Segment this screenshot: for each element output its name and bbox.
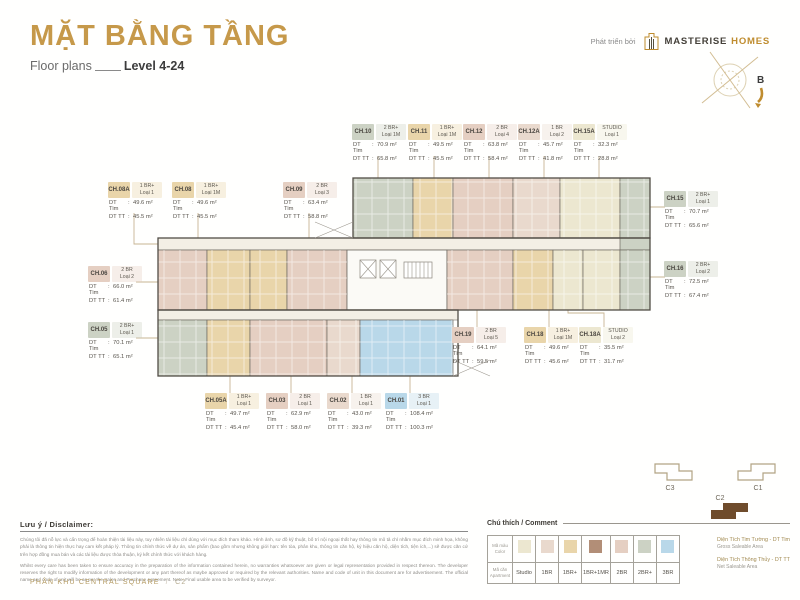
- unit-type-label: 3 BRLoại 1: [409, 393, 439, 409]
- unit-net-area: DT TT:39.3 m²: [327, 425, 381, 431]
- unit-net-area: DT TT:65.6 m²: [664, 223, 718, 229]
- unit-gross-area: DT Tim:64.1 m²: [452, 345, 506, 357]
- disclaimer-block: Lưu ý / Disclaimer: Chúng tôi đã nỗ lực …: [20, 520, 468, 584]
- unit-id-chip: CH.15A: [573, 124, 595, 140]
- unit-gross-area: DT Tim:63.4 m²: [283, 200, 337, 212]
- unit-id-chip: CH.15: [664, 191, 686, 207]
- unit-gross-area: DT Tim:45.7 m²: [518, 142, 572, 154]
- footer-zone-name: PHÂN KHU CENTRAL SQUARE: [30, 579, 160, 586]
- unit-net-area: DT TT:45.5 m²: [408, 156, 462, 162]
- unit-callout-header: CH.081 BR+Loại 1M: [172, 182, 226, 198]
- unit-type-label: 1 BR+Loại 1: [132, 182, 162, 198]
- unit-callout: CH.08A1 BR+Loại 1DT Tim:49.6 m²DT TT:45.…: [108, 182, 162, 220]
- unit-net-area: DT TT:65.1 m²: [88, 354, 142, 360]
- disclaimer-title: Lưu ý / Disclaimer:: [20, 520, 468, 532]
- unit-callout: CH.192 BRLoại 5DT Tim:64.1 m²DT TT:59.5 …: [452, 327, 506, 365]
- keyplan-label-c3: C3: [666, 485, 675, 492]
- unit-callout-header: CH.111 BR+Loại 1M: [408, 124, 462, 140]
- unit-callout-header: CH.15ASTUDIOLoại 1: [573, 124, 627, 140]
- unit-callout-header: CH.05A1 BR+Loại 1: [205, 393, 259, 409]
- unit-callout: CH.12A1 BRLoại 2DT Tim:45.7 m²DT TT:41.8…: [518, 124, 572, 162]
- footer-block-name: C2: [175, 579, 186, 586]
- unit-net-area: DT TT:45.6 m²: [524, 359, 578, 365]
- unit-gross-area: DT Tim:49.6 m²: [172, 200, 226, 212]
- unit-id-chip: CH.01: [385, 393, 407, 409]
- legend-label-1BR+: 1BR+: [559, 563, 582, 584]
- unit-callout: CH.092 BRLoại 3DT Tim:63.4 m²DT TT:58.8 …: [283, 182, 337, 220]
- floor-plan-page: MẶT BẰNG TẦNG Floor plans Level 4-24 Phá…: [0, 0, 800, 600]
- unit-id-chip: CH.19: [452, 327, 474, 343]
- unit-id-chip: CH.02: [327, 393, 349, 409]
- unit-type-label: 2 BR+Loại 2: [688, 261, 718, 277]
- legend-header: Chú thích / Comment: [487, 520, 790, 527]
- unit-callout: CH.18ASTUDIOLoại 2DT Tim:35.5 m²DT TT:31…: [579, 327, 633, 365]
- unit-callout-header: CH.192 BRLoại 5: [452, 327, 506, 343]
- unit-type-label: 1 BR+Loại 1M: [548, 327, 578, 343]
- unit-gross-area: DT Tim:63.8 m²: [463, 142, 517, 154]
- unit-callout-header: CH.013 BRLoại 1: [385, 393, 439, 409]
- unit-callout-header: CH.162 BR+Loại 2: [664, 261, 718, 277]
- unit-gross-area: DT Tim:49.7 m²: [205, 411, 259, 423]
- unit-type-label: 2 BRLoại 4: [487, 124, 517, 140]
- subtitle-level-range: Level 4-24: [124, 59, 184, 73]
- unit-callout: CH.111 BR+Loại 1MDT Tim:49.5 m²DT TT:45.…: [408, 124, 462, 162]
- unit-callout: CH.162 BR+Loại 2DT Tim:72.5 m²DT TT:67.4…: [664, 261, 718, 299]
- keyplan-building-c3: [655, 464, 692, 480]
- unit-type-label: 1 BRLoại 1: [351, 393, 381, 409]
- legend-label-1BR+1MR: 1BR+1MR: [582, 563, 611, 584]
- unit-gross-area: DT Tim:108.4 m²: [385, 411, 439, 423]
- brand-name-secondary: HOMES: [731, 36, 770, 47]
- unit-type-label: 1 BRLoại 2: [542, 124, 572, 140]
- compass-icon: B: [700, 50, 772, 114]
- unit-type-label: 2 BR+Loại 1: [112, 322, 142, 338]
- footer: PHÂN KHU CENTRAL SQUARE / C2: [30, 579, 186, 586]
- plan-core: [347, 250, 447, 310]
- unit-net-area: DT TT:59.5 m²: [452, 359, 506, 365]
- legend-swatch-Studio: [513, 536, 536, 563]
- unit-gross-area: DT Tim:32.3 m²: [573, 142, 627, 154]
- brand-name-primary: MASTERISE: [665, 36, 728, 47]
- legend-block: Chú thích / Comment Mã màu Color Mã căn …: [487, 520, 790, 584]
- unit-net-area: DT TT:100.3 m²: [385, 425, 439, 431]
- keyplan-building-c1: [738, 464, 775, 480]
- unit-callout-header: CH.08A1 BR+Loại 1: [108, 182, 162, 198]
- legend-rule: [563, 523, 790, 524]
- legend-label-3BR: 3BR: [656, 563, 679, 584]
- keyplan-label-c1: C1: [754, 485, 763, 492]
- unit-callout: CH.032 BRLoại 1DT Tim:62.9 m²DT TT:58.0 …: [266, 393, 320, 431]
- unit-gross-area: DT Tim:43.0 m²: [327, 411, 381, 423]
- unit-callout-header: CH.062 BRLoại 2: [88, 266, 142, 282]
- unit-gross-area: DT Tim:66.0 m²: [88, 284, 142, 296]
- legend-swatch-2BR+: [633, 536, 656, 563]
- legend-rowlabel-color: Mã màu Color: [488, 536, 513, 563]
- legend-label-2BR+: 2BR+: [633, 563, 656, 584]
- unit-type-label: 1 BR+Loại 1: [229, 393, 259, 409]
- unit-callout-header: CH.181 BR+Loại 1M: [524, 327, 578, 343]
- subtitle-en: Floor plans: [30, 59, 92, 73]
- unit-type-label: 1 BR+Loại 1M: [196, 182, 226, 198]
- title-block: MẶT BẰNG TẦNG Floor plans Level 4-24: [30, 20, 289, 73]
- keyplan-label-c2: C2: [716, 495, 725, 502]
- unit-callout: CH.052 BR+Loại 1DT Tim:70.1 m²DT TT:65.1…: [88, 322, 142, 360]
- unit-id-chip: CH.03: [266, 393, 288, 409]
- legend-notes: Diện Tích Tim Tường - DT Tim Gross Salea…: [717, 537, 792, 577]
- unit-id-chip: CH.08: [172, 182, 194, 198]
- unit-net-area: DT TT:45.4 m²: [205, 425, 259, 431]
- unit-callout-header: CH.092 BRLoại 3: [283, 182, 337, 198]
- unit-net-area: DT TT:45.5 m²: [108, 214, 162, 220]
- unit-id-chip: CH.11: [408, 124, 430, 140]
- unit-callout: CH.181 BR+Loại 1MDT Tim:49.6 m²DT TT:45.…: [524, 327, 578, 365]
- unit-id-chip: CH.18: [524, 327, 546, 343]
- unit-callout: CH.122 BRLoại 4DT Tim:63.8 m²DT TT:58.4 …: [463, 124, 517, 162]
- unit-net-area: DT TT:45.5 m²: [172, 214, 226, 220]
- legend-swatch-1BR+1MR: [582, 536, 611, 563]
- unit-id-chip: CH.10: [352, 124, 374, 140]
- developer-brand-block: Phát triển bởi MASTERISE HOMES: [591, 32, 770, 51]
- unit-callout: CH.15ASTUDIOLoại 1DT Tim:32.3 m²DT TT:28…: [573, 124, 627, 162]
- unit-net-area: DT TT:58.8 m²: [283, 214, 337, 220]
- unit-callout: CH.081 BR+Loại 1MDT Tim:49.6 m²DT TT:45.…: [172, 182, 226, 220]
- unit-gross-area: DT Tim:70.1 m²: [88, 340, 142, 352]
- unit-net-area: DT TT:65.8 m²: [352, 156, 406, 162]
- unit-type-label: 2 BRLoại 5: [476, 327, 506, 343]
- unit-callout: CH.021 BRLoại 1DT Tim:43.0 m²DT TT:39.3 …: [327, 393, 381, 431]
- unit-gross-area: DT Tim:70.7 m²: [664, 209, 718, 221]
- unit-callout-header: CH.102 BR+Loại 1M: [352, 124, 406, 140]
- developer-label: Phát triển bởi: [591, 37, 636, 46]
- legend-title: Chú thích / Comment: [487, 520, 557, 527]
- unit-gross-area: DT Tim:72.5 m²: [664, 279, 718, 291]
- footer-separator: /: [166, 579, 169, 586]
- page-subtitle: Floor plans Level 4-24: [30, 59, 289, 73]
- unit-gross-area: DT Tim:35.5 m²: [579, 345, 633, 357]
- unit-net-area: DT TT:41.8 m²: [518, 156, 572, 162]
- legend-swatch-1BR+: [559, 536, 582, 563]
- unit-callout-header: CH.021 BRLoại 1: [327, 393, 381, 409]
- unit-id-chip: CH.12A: [518, 124, 540, 140]
- masterise-logo-icon: [643, 32, 660, 51]
- legend-swatch-1BR: [536, 536, 559, 563]
- unit-type-label: 2 BR+Loại 1: [688, 191, 718, 207]
- elevator-stairs-core: [360, 260, 432, 278]
- note-gross-area: Diện Tích Tim Tường - DT Tim Gross Salea…: [717, 537, 792, 550]
- unit-id-chip: CH.08A: [108, 182, 130, 198]
- unit-gross-area: DT Tim:62.9 m²: [266, 411, 320, 423]
- unit-net-area: DT TT:28.8 m²: [573, 156, 627, 162]
- legend-label-Studio: Studio: [513, 563, 536, 584]
- unit-id-chip: CH.05: [88, 322, 110, 338]
- unit-type-label: 2 BRLoại 2: [112, 266, 142, 282]
- disclaimer-text-vi: Chúng tôi đã nỗ lực và cẩn trọng để hoàn…: [20, 536, 468, 558]
- unit-id-chip: CH.16: [664, 261, 686, 277]
- unit-callout-header: CH.152 BR+Loại 1: [664, 191, 718, 207]
- legend-table: Mã màu Color Mã căn Apartment Studio1BR1…: [487, 535, 680, 584]
- unit-callout-header: CH.122 BRLoại 4: [463, 124, 517, 140]
- unit-type-label: STUDIOLoại 2: [603, 327, 633, 343]
- unit-callout: CH.05A1 BR+Loại 1DT Tim:49.7 m²DT TT:45.…: [205, 393, 259, 431]
- unit-net-area: DT TT:31.7 m²: [579, 359, 633, 365]
- unit-callout: CH.102 BR+Loại 1MDT Tim:70.9 m²DT TT:65.…: [352, 124, 406, 162]
- keyplan: C3 C1 C2: [648, 452, 793, 527]
- unit-id-chip: CH.18A: [579, 327, 601, 343]
- unit-type-label: 2 BR+Loại 1M: [376, 124, 406, 140]
- compass-north-label: B: [757, 75, 764, 86]
- legend-swatch-3BR: [656, 536, 679, 563]
- unit-gross-area: DT Tim:49.6 m²: [524, 345, 578, 357]
- unit-callout: CH.152 BR+Loại 1DT Tim:70.7 m²DT TT:65.6…: [664, 191, 718, 229]
- unit-callout-header: CH.032 BRLoại 1: [266, 393, 320, 409]
- unit-type-label: 2 BRLoại 1: [290, 393, 320, 409]
- legend-swatch-2BR: [610, 536, 633, 563]
- unit-net-area: DT TT:58.4 m²: [463, 156, 517, 162]
- unit-type-label: STUDIOLoại 1: [597, 124, 627, 140]
- unit-net-area: DT TT:61.4 m²: [88, 298, 142, 304]
- legend-label-1BR: 1BR: [536, 563, 559, 584]
- legend-label-2BR: 2BR: [610, 563, 633, 584]
- unit-callout-header: CH.052 BR+Loại 1: [88, 322, 142, 338]
- unit-gross-area: DT Tim:49.5 m²: [408, 142, 462, 154]
- unit-callout: CH.062 BRLoại 2DT Tim:66.0 m²DT TT:61.4 …: [88, 266, 142, 304]
- unit-callout-header: CH.12A1 BRLoại 2: [518, 124, 572, 140]
- legend-rowlabel-apartment: Mã căn Apartment: [488, 563, 513, 584]
- page-title: MẶT BẰNG TẦNG: [30, 20, 289, 53]
- subtitle-divider-line: [95, 61, 121, 71]
- unit-net-area: DT TT:67.4 m²: [664, 293, 718, 299]
- unit-type-label: 1 BR+Loại 1M: [432, 124, 462, 140]
- unit-callout-header: CH.18ASTUDIOLoại 2: [579, 327, 633, 343]
- keyplan-building-c2-active: [711, 503, 748, 519]
- unit-id-chip: CH.05A: [205, 393, 227, 409]
- unit-id-chip: CH.06: [88, 266, 110, 282]
- unit-callout: CH.013 BRLoại 1DT Tim:108.4 m²DT TT:100.…: [385, 393, 439, 431]
- unit-id-chip: CH.09: [283, 182, 305, 198]
- unit-net-area: DT TT:58.0 m²: [266, 425, 320, 431]
- unit-gross-area: DT Tim:49.6 m²: [108, 200, 162, 212]
- unit-id-chip: CH.12: [463, 124, 485, 140]
- unit-type-label: 2 BRLoại 3: [307, 182, 337, 198]
- note-net-area: Diện Tích Thông Thủy - DT TT Net Saleabl…: [717, 557, 792, 570]
- unit-gross-area: DT Tim:70.9 m²: [352, 142, 406, 154]
